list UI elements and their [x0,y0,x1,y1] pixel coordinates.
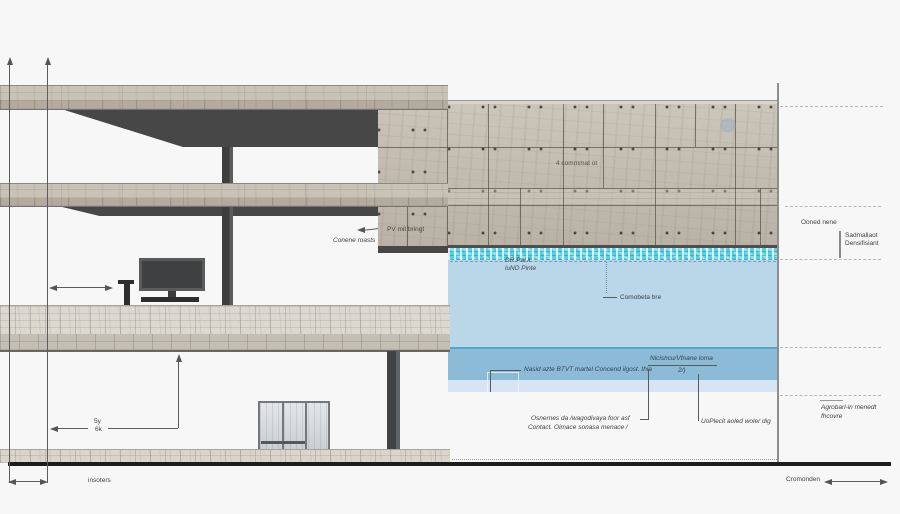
level-line-roof [780,106,883,107]
water-body [448,260,778,347]
glass-partition [258,401,330,452]
roof-slab [0,85,448,110]
nasid-label: Nasid azte BTVT martel Concend ilgost. t… [524,366,652,374]
wall-joint [603,104,604,188]
dimension-arrow-icon [7,57,13,65]
5y6k-dim-vertical [178,360,179,428]
wall-bracket-leg [124,284,130,305]
interior-column-upper [222,147,233,305]
level-line-water [780,259,881,260]
comobeta-leader [603,297,617,298]
osnernes-label-line1: Osnernes da /wagodivaya foor asf [531,415,630,423]
wall-joint [448,147,778,148]
ground-line [8,462,891,466]
lower-floor-slab-base [0,334,450,352]
cromonden-dim-line [829,481,883,482]
water-surface-band [448,248,778,260]
agrobarl-label-line2: fhcovre [821,413,842,421]
lower-floor-slab [0,305,450,335]
ooned-label: Ooned nene [801,219,837,227]
wall-joint [760,188,761,245]
ceiling-shadow-wedge-lower [58,206,378,216]
agrobarl-label-line1: Agrobarl-in menedt [821,404,876,412]
mid-slab-strata [0,198,448,206]
level-tick [839,231,841,258]
monitor-screen [139,258,205,291]
dimension-arrow-icon [824,479,832,485]
nicishcu-leader-v2 [698,374,699,421]
monitor-base [141,297,199,302]
insoters-dim-line [14,481,42,482]
5y6k-dim-line [56,428,88,429]
wall-panel-label: 4 commmat ot [556,160,597,168]
mid-slab [0,183,448,207]
nicishcu-label-line2: 2/) [678,367,686,375]
uoplecit-label: UoPlecit aoled woler dig [701,418,771,426]
roof-slab-strata [0,100,448,109]
nicishcu-leader-v1 [648,369,649,420]
osnernes-leader [640,419,649,420]
ground-slab [0,449,450,463]
pv-label: PV mit bringt [387,226,424,234]
note-rule [820,400,843,401]
level-line-floor [780,395,881,396]
wall-joint [448,188,778,189]
dimension-arrow-icon [8,479,16,485]
orpal-label-line2: luND Pinte [505,265,536,273]
sadmal-label-line2: Densifisiant [845,240,879,248]
nasid-leader-h [490,370,521,371]
level-line-mid [785,206,881,207]
glass-rail [261,441,305,444]
pool-step-outline [487,372,519,394]
pier-joint [378,147,448,148]
dimension-line-vertical [9,60,10,483]
conene-arrow-icon [357,227,365,233]
wall-stain [720,118,736,132]
right-boundary-line [777,83,779,462]
dimension-arrow-icon [176,354,182,362]
monitor-dim-line [55,287,107,288]
pool-coping-shadow [378,246,448,253]
wall-joint [520,188,521,245]
dimension-arrow-icon [880,479,888,485]
wall-joint [563,104,564,245]
waterline-dashed [450,261,776,262]
interior-column-lower [387,351,400,462]
architectural-section-drawing: 4 commmat ot Conene ro [0,0,900,514]
cromonden-label: Cromonden [786,476,820,484]
5y6k-dim-line [108,428,178,429]
wall-joint [655,104,656,245]
osnernes-label-line2: Contact. Oimace sonasa menace / [528,424,628,432]
nicishcu-label-line1: Nicishcu/Vfnane loma [650,355,713,363]
dimension-arrow-icon [40,479,48,485]
dimension-arrow-icon [45,57,51,65]
pool-floor-dotted-line [452,459,777,460]
comobeta-label: Comobeta bre [620,294,661,302]
dimension-line-vertical [47,60,48,483]
insoters-label: insoters [88,477,111,485]
wall-joint [695,104,696,147]
nasid-leader-v [490,370,491,392]
level-line-deep [780,347,881,348]
wall-slab-band [448,188,778,205]
dimension-arrow-icon [105,285,113,291]
dimension-arrow-icon [50,426,58,432]
dimension-arrow-icon [49,285,57,291]
concrete-panel-wall: 4 commmat ot [448,100,778,248]
ceiling-shadow-wedge-upper [58,108,378,147]
glass-mullion [305,403,307,450]
wall-joint [488,104,489,245]
wall-joint [448,205,778,206]
nicishcu-underline [648,365,717,366]
conene-label: Conene roasts [333,237,375,245]
dim-label-6k: 6k [95,426,102,434]
conene-leader [363,228,378,231]
comobeta-leader-dotted [606,262,607,293]
